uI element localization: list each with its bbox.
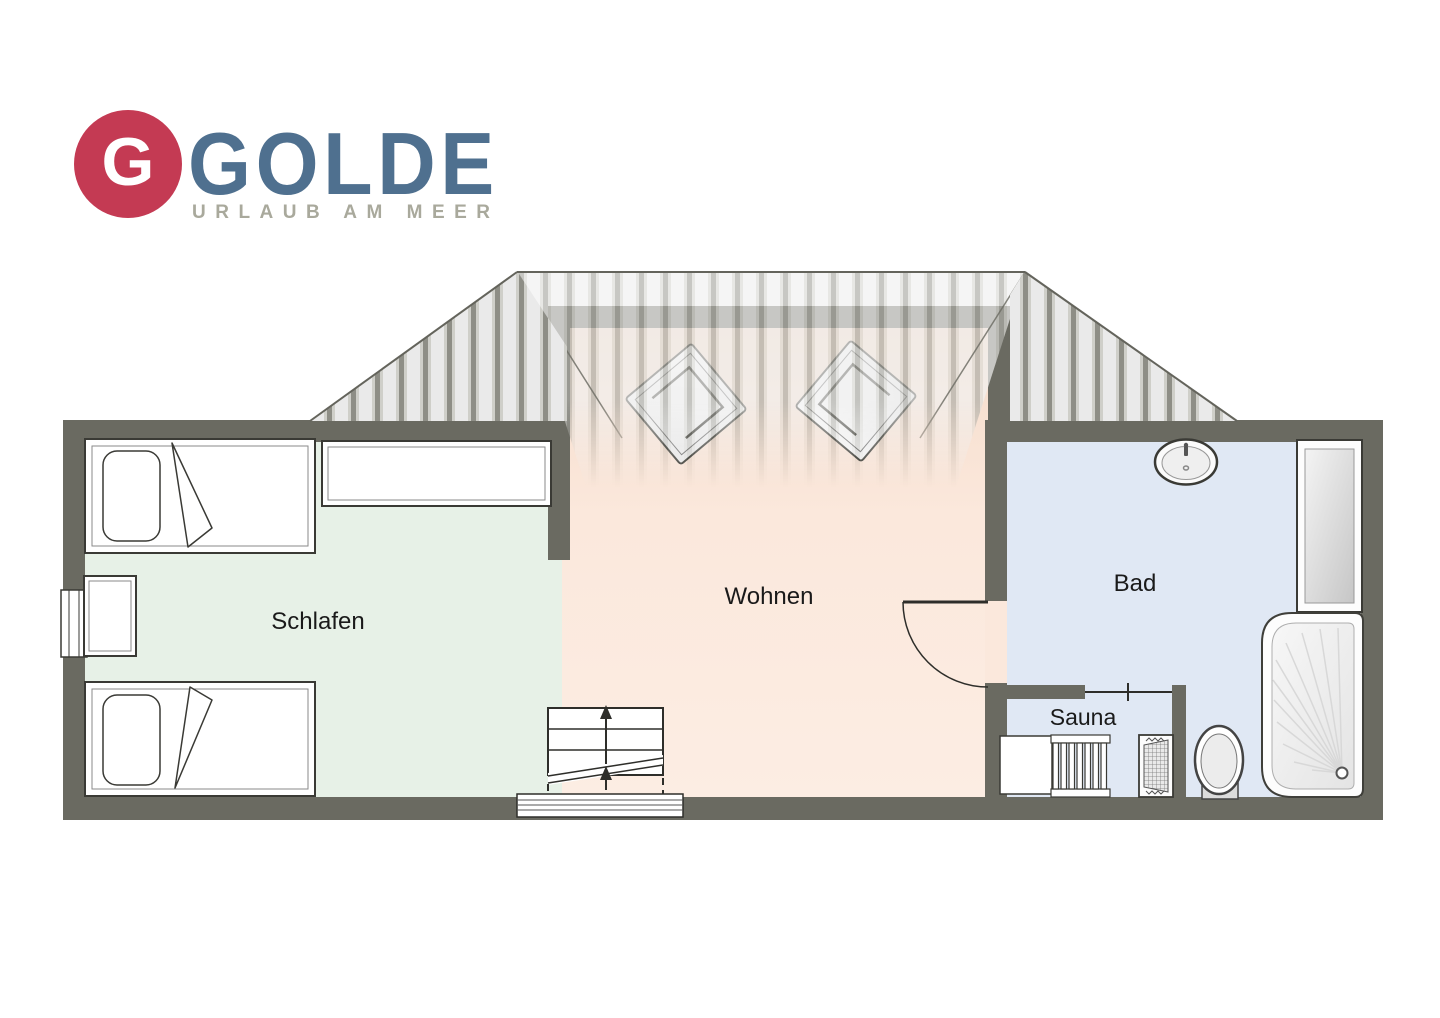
roof-right-wing [1010,271,1237,421]
door-threshold [985,601,1007,683]
mirror-cabinet [1297,440,1362,612]
toilet [1195,726,1243,799]
shower [1262,613,1363,797]
floorplan-page: G GOLDE URLAUB AM MEER [0,0,1440,1018]
wall-bad-upper [985,442,1007,601]
nightstand [84,576,136,656]
room-label-sauna: Sauna [1050,704,1117,730]
wall-sauna-right [1172,685,1186,797]
sink-faucet [1184,446,1188,456]
sauna-bench [1000,736,1052,794]
sauna-interior [1000,735,1173,797]
floorplan-drawing: Schlafen Wohnen Bad Sauna [0,0,1440,1018]
wall-right [1361,420,1383,820]
room-label-schlafen: Schlafen [271,608,364,635]
room-label-wohnen: Wohnen [725,583,814,610]
single-bed-top [85,439,315,553]
room-label-bad: Bad [1114,570,1157,597]
shower-drain [1337,768,1348,779]
sink [1155,440,1217,485]
sauna-heater [1139,735,1173,797]
wall-bottom [63,797,1383,820]
stairs-landing [517,794,683,817]
pillow [103,451,160,541]
roof-dormer-overlay [517,272,1025,487]
pillow [103,695,160,785]
single-bed-bottom [85,682,315,796]
roof-left-wing [310,271,567,421]
wardrobe [322,441,551,506]
wall-sauna-top [1000,685,1085,699]
